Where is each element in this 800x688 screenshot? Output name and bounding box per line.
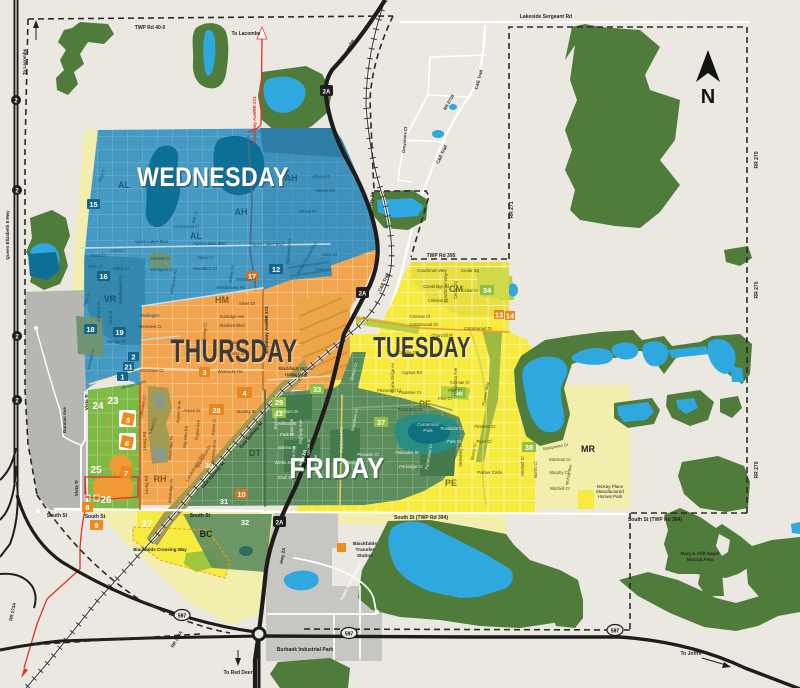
svg-text:Blackfalds Crossing Way: Blackfalds Crossing Way bbox=[133, 547, 187, 552]
svg-text:Transfer: Transfer bbox=[356, 547, 375, 553]
svg-text:TWP Rd 40-0: TWP Rd 40-0 bbox=[135, 25, 166, 31]
svg-text:AL: AL bbox=[190, 231, 202, 241]
svg-text:3: 3 bbox=[202, 368, 206, 377]
svg-text:To Joffre: To Joffre bbox=[680, 651, 701, 657]
svg-text:Scholar Ave: Scholar Ave bbox=[291, 445, 296, 468]
svg-text:Woodbine Cl: Woodbine Cl bbox=[193, 266, 217, 271]
svg-text:Vintage Cl: Vintage Cl bbox=[106, 339, 125, 344]
svg-text:McKelvey Cl: McKelvey Cl bbox=[458, 443, 463, 466]
svg-text:Pondside Cr: Pondside Cr bbox=[440, 426, 464, 431]
svg-text:South St: South St bbox=[85, 514, 106, 520]
svg-text:Plumtree Cr: Plumtree Cr bbox=[399, 390, 422, 395]
svg-text:38: 38 bbox=[525, 443, 533, 452]
svg-text:Leung Rd: Leung Rd bbox=[144, 475, 149, 494]
svg-text:Natural Area: Natural Area bbox=[687, 557, 714, 562]
svg-text:Maclean Cr: Maclean Cr bbox=[549, 457, 571, 462]
svg-text:Westgate Cr: Westgate Cr bbox=[150, 267, 174, 272]
svg-text:Lorne Ave: Lorne Ave bbox=[313, 454, 318, 473]
svg-text:23: 23 bbox=[107, 396, 119, 407]
svg-text:East Ave: East Ave bbox=[273, 412, 278, 429]
svg-text:Aspen Dr: Aspen Dr bbox=[183, 408, 201, 413]
svg-text:Piper Cl: Piper Cl bbox=[477, 439, 492, 444]
svg-text:Parkwood Rd: Parkwood Rd bbox=[339, 427, 344, 453]
svg-text:13: 13 bbox=[495, 311, 503, 320]
svg-text:Westbrooke Rd: Westbrooke Rd bbox=[217, 285, 246, 290]
svg-text:Duncan Ave: Duncan Ave bbox=[62, 407, 67, 433]
svg-text:Churchill Pl: Churchill Pl bbox=[431, 333, 452, 338]
svg-text:Athens Rd: Athens Rd bbox=[315, 188, 335, 193]
svg-text:24: 24 bbox=[92, 401, 104, 412]
svg-text:Homes Park: Homes Park bbox=[598, 494, 624, 499]
svg-text:Silver Dr: Silver Dr bbox=[239, 301, 256, 306]
svg-text:Broadway Ave/RR 272: Broadway Ave/RR 272 bbox=[252, 96, 257, 144]
svg-text:To Lacombe: To Lacombe bbox=[231, 31, 260, 37]
svg-text:34: 34 bbox=[483, 286, 492, 295]
svg-text:597: 597 bbox=[611, 629, 620, 635]
svg-text:29: 29 bbox=[275, 398, 283, 407]
svg-text:Coachman Way: Coachman Way bbox=[443, 272, 448, 303]
svg-text:Pinetree Cr: Pinetree Cr bbox=[474, 424, 496, 429]
svg-text:RH: RH bbox=[154, 474, 167, 484]
svg-text:597: 597 bbox=[345, 632, 354, 638]
svg-text:Cedar Cr: Cedar Cr bbox=[462, 288, 480, 293]
svg-text:Ponderosa Ave: Ponderosa Ave bbox=[453, 367, 458, 396]
svg-text:To Lacombe: To Lacombe bbox=[22, 48, 27, 75]
svg-text:Moore St: Moore St bbox=[306, 438, 311, 456]
svg-text:19: 19 bbox=[115, 328, 123, 337]
svg-text:Anna Cl: Anna Cl bbox=[91, 253, 106, 258]
svg-text:RR 270: RR 270 bbox=[754, 151, 760, 168]
svg-text:Aztec Cr: Aztec Cr bbox=[315, 267, 332, 272]
svg-text:Portway Cl: Portway Cl bbox=[341, 460, 361, 465]
svg-text:Cedar Sq: Cedar Sq bbox=[461, 268, 479, 273]
svg-text:Queen Elizabeth II Hwy: Queen Elizabeth II Hwy bbox=[5, 210, 10, 260]
svg-text:Centennial: Centennial bbox=[417, 422, 439, 427]
svg-text:31: 31 bbox=[220, 497, 228, 506]
svg-text:Almond Cr: Almond Cr bbox=[150, 256, 170, 261]
svg-text:TUESDAY: TUESDAY bbox=[373, 332, 471, 364]
svg-text:Park St: Park St bbox=[447, 439, 462, 444]
svg-text:Leung Rd: Leung Rd bbox=[142, 431, 147, 450]
svg-text:Vista Tr: Vista Tr bbox=[84, 394, 89, 410]
svg-text:Sunridge Ave: Sunridge Ave bbox=[220, 314, 246, 319]
svg-text:Arlen Cl: Arlen Cl bbox=[88, 264, 103, 269]
svg-text:RR 270: RR 270 bbox=[754, 281, 760, 298]
svg-text:Vista Tr: Vista Tr bbox=[74, 480, 79, 496]
svg-text:16: 16 bbox=[99, 272, 107, 281]
svg-text:Broadway Ave/RR 272: Broadway Ave/RR 272 bbox=[264, 306, 269, 354]
svg-text:Cottonwood Dr: Cottonwood Dr bbox=[464, 326, 493, 331]
svg-text:Valley Cr: Valley Cr bbox=[113, 266, 130, 271]
svg-text:Pine Cr: Pine Cr bbox=[438, 396, 453, 401]
svg-text:Silver Dr: Silver Dr bbox=[230, 340, 247, 345]
svg-text:27: 27 bbox=[141, 519, 153, 530]
svg-text:Lakeside Sergeant Rd: Lakeside Sergeant Rd bbox=[520, 14, 572, 20]
svg-text:Park: Park bbox=[423, 428, 433, 433]
svg-text:Highway Ave: Highway Ave bbox=[298, 419, 303, 444]
svg-text:South St: South St bbox=[47, 513, 68, 519]
svg-text:Morris Cl: Morris Cl bbox=[533, 462, 538, 479]
svg-text:PE: PE bbox=[445, 478, 457, 488]
svg-text:Sunrise St: Sunrise St bbox=[225, 351, 245, 356]
svg-text:Willson St: Willson St bbox=[278, 421, 297, 426]
svg-text:TWP Rd 395: TWP Rd 395 bbox=[427, 253, 456, 259]
svg-text:South St (TWP Rd 394): South St (TWP Rd 394) bbox=[628, 517, 682, 523]
svg-text:RR 271: RR 271 bbox=[509, 201, 515, 218]
svg-text:Aspen Lakes Blvd: Aspen Lakes Blvd bbox=[250, 242, 284, 247]
svg-text:Coachman Way: Coachman Way bbox=[417, 268, 448, 273]
svg-text:VR: VR bbox=[104, 294, 117, 304]
svg-text:32: 32 bbox=[241, 518, 249, 527]
svg-text:Arrowwood Cl: Arrowwood Cl bbox=[173, 224, 199, 229]
svg-text:East Ave: East Ave bbox=[289, 418, 294, 435]
svg-text:26: 26 bbox=[100, 495, 112, 506]
svg-text:Mitchell Cr: Mitchell Cr bbox=[520, 456, 525, 476]
svg-text:Winston Pl: Winston Pl bbox=[236, 277, 256, 282]
svg-text:14: 14 bbox=[506, 312, 515, 321]
svg-text:Palisades St: Palisades St bbox=[395, 450, 419, 455]
svg-text:Adina Cl: Adina Cl bbox=[197, 255, 213, 260]
svg-text:Mitchell Cr: Mitchell Cr bbox=[550, 486, 570, 491]
svg-text:AH: AH bbox=[285, 173, 298, 183]
svg-text:Vista Cl: Vista Cl bbox=[108, 311, 113, 325]
svg-text:21: 21 bbox=[124, 363, 132, 372]
svg-text:Westview Cr: Westview Cr bbox=[138, 324, 162, 329]
svg-text:Parkridge Cr: Parkridge Cr bbox=[399, 464, 423, 469]
svg-text:10: 10 bbox=[237, 490, 245, 499]
svg-text:Panorama Dr: Panorama Dr bbox=[398, 407, 424, 412]
svg-text:South St: South St bbox=[190, 513, 211, 519]
svg-text:WEDNESDAY: WEDNESDAY bbox=[137, 162, 289, 192]
svg-text:Cottonwood Dr: Cottonwood Dr bbox=[410, 322, 439, 327]
svg-text:Blackfalds: Blackfalds bbox=[353, 541, 377, 547]
svg-text:Mary & Cliff Soper: Mary & Cliff Soper bbox=[680, 551, 719, 556]
svg-text:12: 12 bbox=[272, 265, 280, 274]
svg-text:18: 18 bbox=[86, 325, 94, 334]
svg-text:Cedar Sq: Cedar Sq bbox=[453, 280, 458, 298]
svg-text:AL: AL bbox=[118, 180, 130, 190]
svg-text:To Red Deer: To Red Deer bbox=[223, 670, 252, 676]
svg-text:Burbank Industrial Park: Burbank Industrial Park bbox=[277, 647, 334, 653]
svg-text:Station: Station bbox=[357, 553, 373, 559]
svg-text:2A: 2A bbox=[323, 90, 331, 96]
svg-text:Stanley St: Stanley St bbox=[236, 409, 256, 414]
svg-text:Womacks Rd: Womacks Rd bbox=[218, 369, 243, 374]
svg-text:37: 37 bbox=[377, 418, 385, 427]
svg-text:Ava Cr: Ava Cr bbox=[111, 248, 124, 253]
svg-text:N: N bbox=[701, 86, 715, 108]
svg-text:South St (TWP Rd 394): South St (TWP Rd 394) bbox=[394, 515, 448, 521]
svg-text:Wellington: Wellington bbox=[140, 313, 160, 318]
svg-text:597: 597 bbox=[178, 614, 187, 620]
svg-text:Stanford Blvd: Stanford Blvd bbox=[219, 323, 245, 328]
svg-text:Aspen Lakes Blvd: Aspen Lakes Blvd bbox=[192, 241, 226, 246]
svg-text:2A: 2A bbox=[276, 521, 284, 527]
svg-text:Palmer Circle: Palmer Circle bbox=[477, 470, 503, 475]
svg-text:Athens Pl: Athens Pl bbox=[298, 209, 316, 214]
svg-text:2A: 2A bbox=[359, 292, 367, 298]
svg-text:RR 270: RR 270 bbox=[754, 461, 760, 478]
svg-text:2: 2 bbox=[131, 353, 135, 362]
svg-text:Waghorn St: Waghorn St bbox=[276, 409, 299, 414]
svg-text:Westview Cr: Westview Cr bbox=[140, 368, 164, 373]
svg-text:Winko St: Winko St bbox=[275, 460, 293, 465]
svg-text:MR: MR bbox=[581, 444, 595, 454]
svg-text:Gregg St: Gregg St bbox=[291, 373, 309, 378]
svg-text:HM: HM bbox=[215, 295, 229, 305]
svg-text:DT: DT bbox=[249, 448, 261, 458]
svg-text:Westbrooke Rd: Westbrooke Rd bbox=[118, 275, 123, 304]
svg-text:Camille Cl: Camille Cl bbox=[397, 350, 416, 355]
svg-text:Athens Pl: Athens Pl bbox=[312, 174, 330, 179]
svg-text:15: 15 bbox=[89, 200, 97, 209]
svg-text:28: 28 bbox=[212, 406, 220, 415]
svg-text:1: 1 bbox=[120, 373, 124, 382]
svg-text:Pinnacle Cl: Pinnacle Cl bbox=[357, 452, 378, 457]
svg-text:8: 8 bbox=[85, 503, 89, 512]
svg-text:AH: AH bbox=[235, 207, 248, 217]
svg-text:Aspen Lakes Blvd: Aspen Lakes Blvd bbox=[134, 239, 168, 244]
svg-text:9: 9 bbox=[94, 521, 98, 530]
svg-text:Cyprus Rd: Cyprus Rd bbox=[402, 370, 422, 375]
svg-text:Crimson Cl: Crimson Cl bbox=[410, 314, 431, 319]
svg-text:25: 25 bbox=[90, 465, 102, 476]
svg-text:Valmont St: Valmont St bbox=[96, 301, 101, 322]
svg-text:33: 33 bbox=[313, 385, 321, 394]
svg-text:BC: BC bbox=[200, 529, 213, 539]
svg-text:Prairie Ridge Av: Prairie Ridge Av bbox=[390, 362, 395, 393]
svg-text:Shull St: Shull St bbox=[278, 475, 293, 480]
svg-text:Blackfalds Mobile: Blackfalds Mobile bbox=[278, 366, 314, 371]
svg-text:Aztec St: Aztec St bbox=[321, 252, 337, 257]
